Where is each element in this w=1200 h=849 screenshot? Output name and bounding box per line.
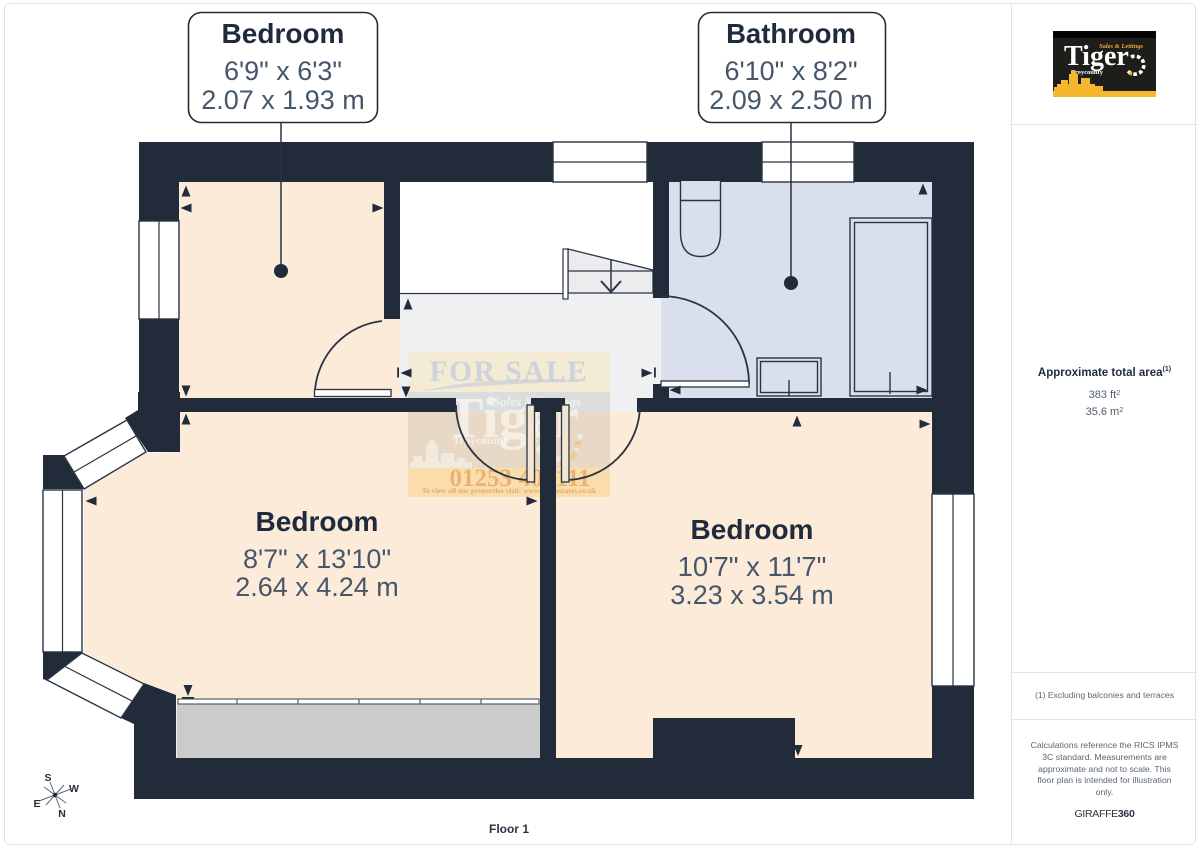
svg-text:Bedroom: Bedroom: [256, 506, 379, 537]
svg-text:Sales & Lettings: Sales & Lettings: [1099, 43, 1144, 50]
svg-text:2.64 x 4.24 m: 2.64 x 4.24 m: [235, 572, 399, 602]
svg-text:Bedroom: Bedroom: [691, 514, 814, 545]
svg-text:3.23 x 3.54 m: 3.23 x 3.54 m: [670, 580, 834, 610]
svg-text:2.09 x 2.50 m: 2.09 x 2.50 m: [709, 85, 873, 115]
svg-text:Bathroom: Bathroom: [726, 18, 856, 49]
svg-text:N: N: [58, 808, 66, 820]
svg-text:8'7" x 13'10": 8'7" x 13'10": [243, 544, 391, 574]
svg-text:To view all our properties vis: To view all our properties visit: www.ti…: [422, 486, 597, 495]
svg-text:6'10" x 8'2": 6'10" x 8'2": [724, 56, 857, 86]
svg-text:Troycounty: Troycounty: [453, 435, 510, 447]
svg-text:Floor 1: Floor 1: [489, 822, 529, 836]
svg-text:E: E: [33, 798, 40, 810]
svg-text:10'7" x 11'7": 10'7" x 11'7": [678, 551, 827, 582]
svg-text:W: W: [69, 783, 79, 795]
svg-text:Bedroom: Bedroom: [222, 18, 345, 49]
svg-text:6'9" x 6'3": 6'9" x 6'3": [224, 56, 342, 86]
svg-text:S: S: [44, 772, 51, 784]
svg-text:2.07 x 1.93 m: 2.07 x 1.93 m: [201, 85, 365, 115]
